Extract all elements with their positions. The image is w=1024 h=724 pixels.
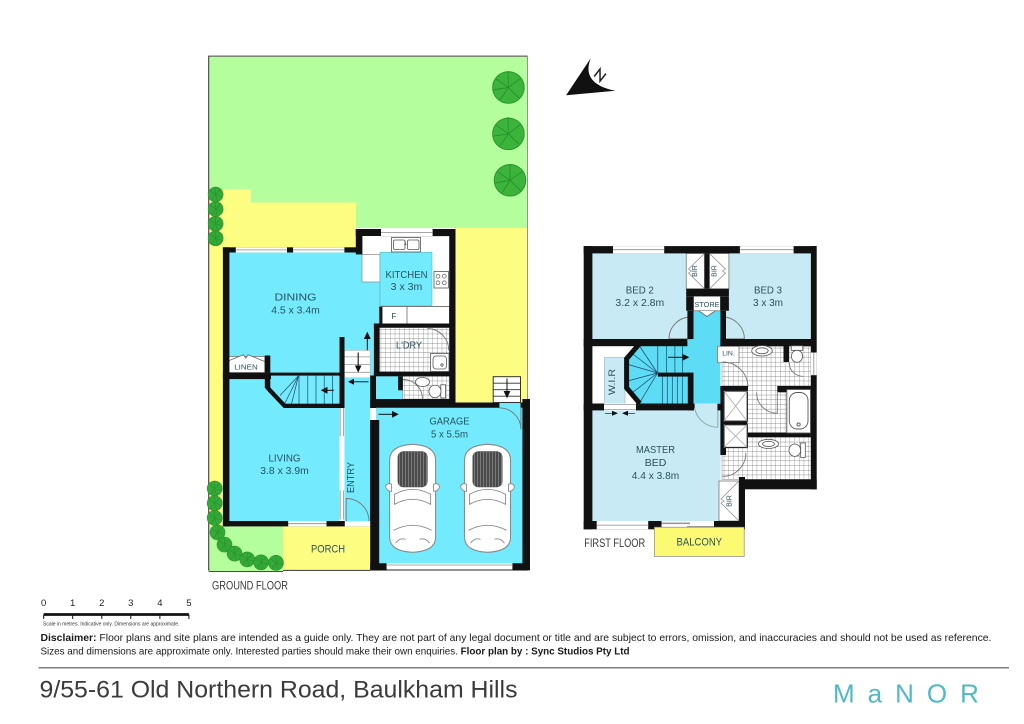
- svg-text:KITCHEN: KITCHEN: [386, 269, 428, 281]
- svg-text:0: 0: [41, 598, 46, 609]
- svg-text:4.5 x 3.4m: 4.5 x 3.4m: [271, 305, 320, 317]
- svg-text:3: 3: [128, 598, 133, 609]
- svg-text:LINEN: LINEN: [234, 362, 258, 371]
- svg-text:W.I.R: W.I.R: [607, 368, 617, 395]
- svg-text:L'DRY: L'DRY: [396, 341, 422, 352]
- svg-text:BIR: BIR: [712, 265, 719, 277]
- svg-text:3.2 x 2.8m: 3.2 x 2.8m: [615, 297, 664, 309]
- svg-text:GROUND FLOOR: GROUND FLOOR: [212, 581, 288, 593]
- svg-text:3 x 3m: 3 x 3m: [753, 297, 783, 309]
- svg-text:BIR: BIR: [692, 265, 699, 277]
- svg-text:MaNOR: MaNOR: [833, 679, 992, 709]
- svg-text:DINING: DINING: [275, 292, 317, 304]
- svg-text:BED: BED: [645, 457, 667, 469]
- svg-text:4: 4: [157, 598, 162, 609]
- svg-text:BALCONY: BALCONY: [677, 536, 723, 548]
- svg-text:4.4 x 3.8m: 4.4 x 3.8m: [632, 470, 680, 482]
- svg-text:GARAGE: GARAGE: [430, 416, 470, 428]
- svg-text:BED 3: BED 3: [754, 285, 782, 297]
- svg-text:5: 5: [186, 598, 191, 609]
- svg-text:Scale in metres. Indicative on: Scale in metres. Indicative only. Dimens…: [43, 622, 179, 628]
- svg-text:5 x 5.5m: 5 x 5.5m: [431, 429, 468, 441]
- svg-text:BED 2: BED 2: [626, 285, 654, 297]
- svg-text:Disclaimer: Floor plans and si: Disclaimer: Floor plans and site plans a…: [41, 633, 992, 644]
- svg-text:1: 1: [70, 598, 75, 609]
- svg-text:STORE: STORE: [694, 300, 719, 309]
- svg-text:ENTRY: ENTRY: [345, 462, 357, 493]
- svg-text:BIR: BIR: [727, 495, 734, 507]
- svg-text:2: 2: [99, 598, 104, 609]
- svg-text:LIVING: LIVING: [269, 453, 301, 465]
- svg-text:LIN.: LIN.: [722, 351, 735, 358]
- svg-text:F: F: [391, 311, 396, 321]
- svg-text:MASTER: MASTER: [636, 444, 675, 456]
- svg-text:FIRST FLOOR: FIRST FLOOR: [584, 538, 645, 550]
- svg-text:9/55-61 Old Northern Road, Bau: 9/55-61 Old Northern Road, Baulkham Hill…: [40, 677, 518, 704]
- svg-text:Sizes and dimensions are appro: Sizes and dimensions are approximate onl…: [41, 647, 630, 658]
- svg-text:PORCH: PORCH: [311, 544, 345, 556]
- svg-text:3 x 3m: 3 x 3m: [391, 281, 423, 293]
- svg-text:3.8 x 3.9m: 3.8 x 3.9m: [260, 465, 309, 477]
